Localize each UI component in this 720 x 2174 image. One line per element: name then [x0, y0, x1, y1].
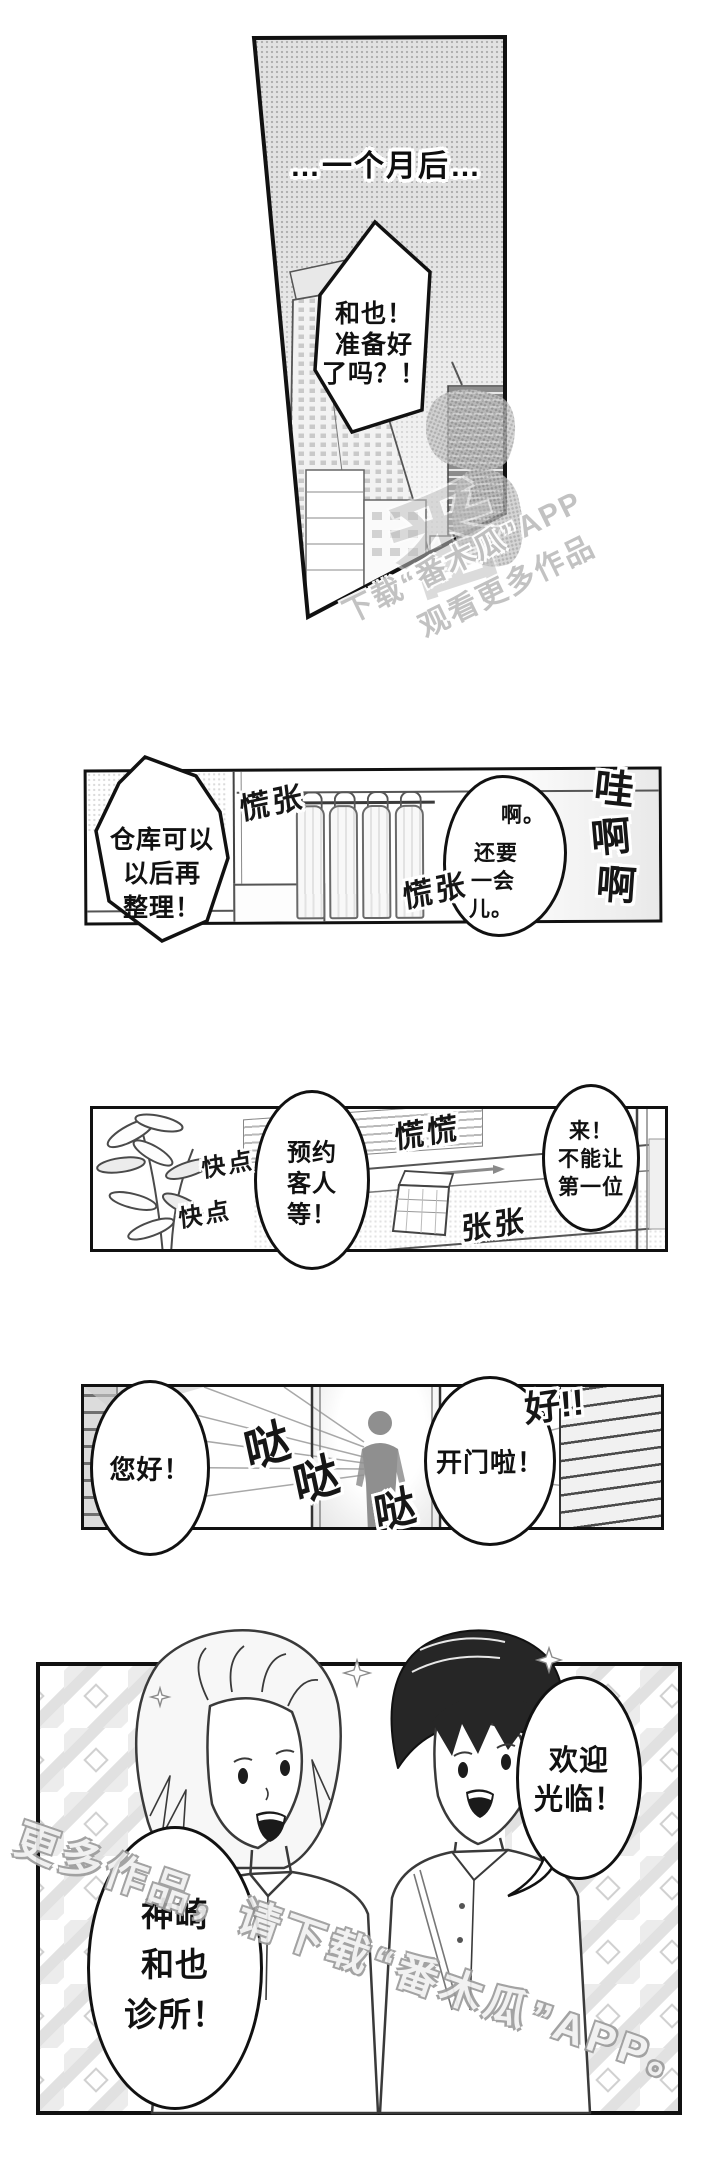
bubble-text: 和也: [141, 1938, 209, 1986]
hanging-curtain: [362, 805, 392, 919]
bubble-text: 开门啦！: [436, 1443, 544, 1480]
bubble-text: 客人: [287, 1164, 337, 1199]
bubble-text: 儿。: [469, 893, 513, 923]
speech-bubble-welcome-tail: [500, 1856, 560, 1900]
bubble-text: 还要: [474, 837, 518, 867]
hanging-curtain: [296, 805, 326, 919]
bubble-text: 预约: [287, 1133, 337, 1168]
sfx-nervous: 张张: [461, 1195, 528, 1248]
bubble-text: 不能让: [558, 1143, 624, 1173]
bubble-text: 了吗？！: [322, 354, 426, 390]
manga-page: { "colors": { "ink": "#1a1a1a", "panel_b…: [0, 0, 720, 2174]
bubble-text: 整理！: [123, 888, 201, 924]
bubble-text: 神崎: [141, 1888, 209, 1936]
plant: [93, 1109, 253, 1252]
bubble-text: 一会: [471, 865, 515, 895]
bubble-text: 第一位: [558, 1171, 624, 1201]
sfx-knock: 哒: [369, 1470, 422, 1542]
hanging-curtain: [329, 805, 359, 919]
bubble-text: 欢迎: [549, 1737, 609, 1779]
panel1-caption: …一个月后…: [290, 141, 482, 185]
bubble-text: 来！: [569, 1115, 613, 1145]
sfx-wah: 啊: [595, 852, 642, 913]
bubble-text: 等！: [287, 1195, 337, 1230]
bubble-text: 诊所！: [124, 1988, 226, 2036]
bubble-text: 啊。: [501, 799, 545, 829]
bubble-text: 仓库可以: [110, 820, 214, 856]
bubble-text: 光临！: [534, 1776, 624, 1818]
sfx-good: 好!!: [522, 1373, 585, 1433]
bubble-text: 以后再: [123, 854, 201, 890]
bubble-text: 您好！: [109, 1450, 190, 1487]
